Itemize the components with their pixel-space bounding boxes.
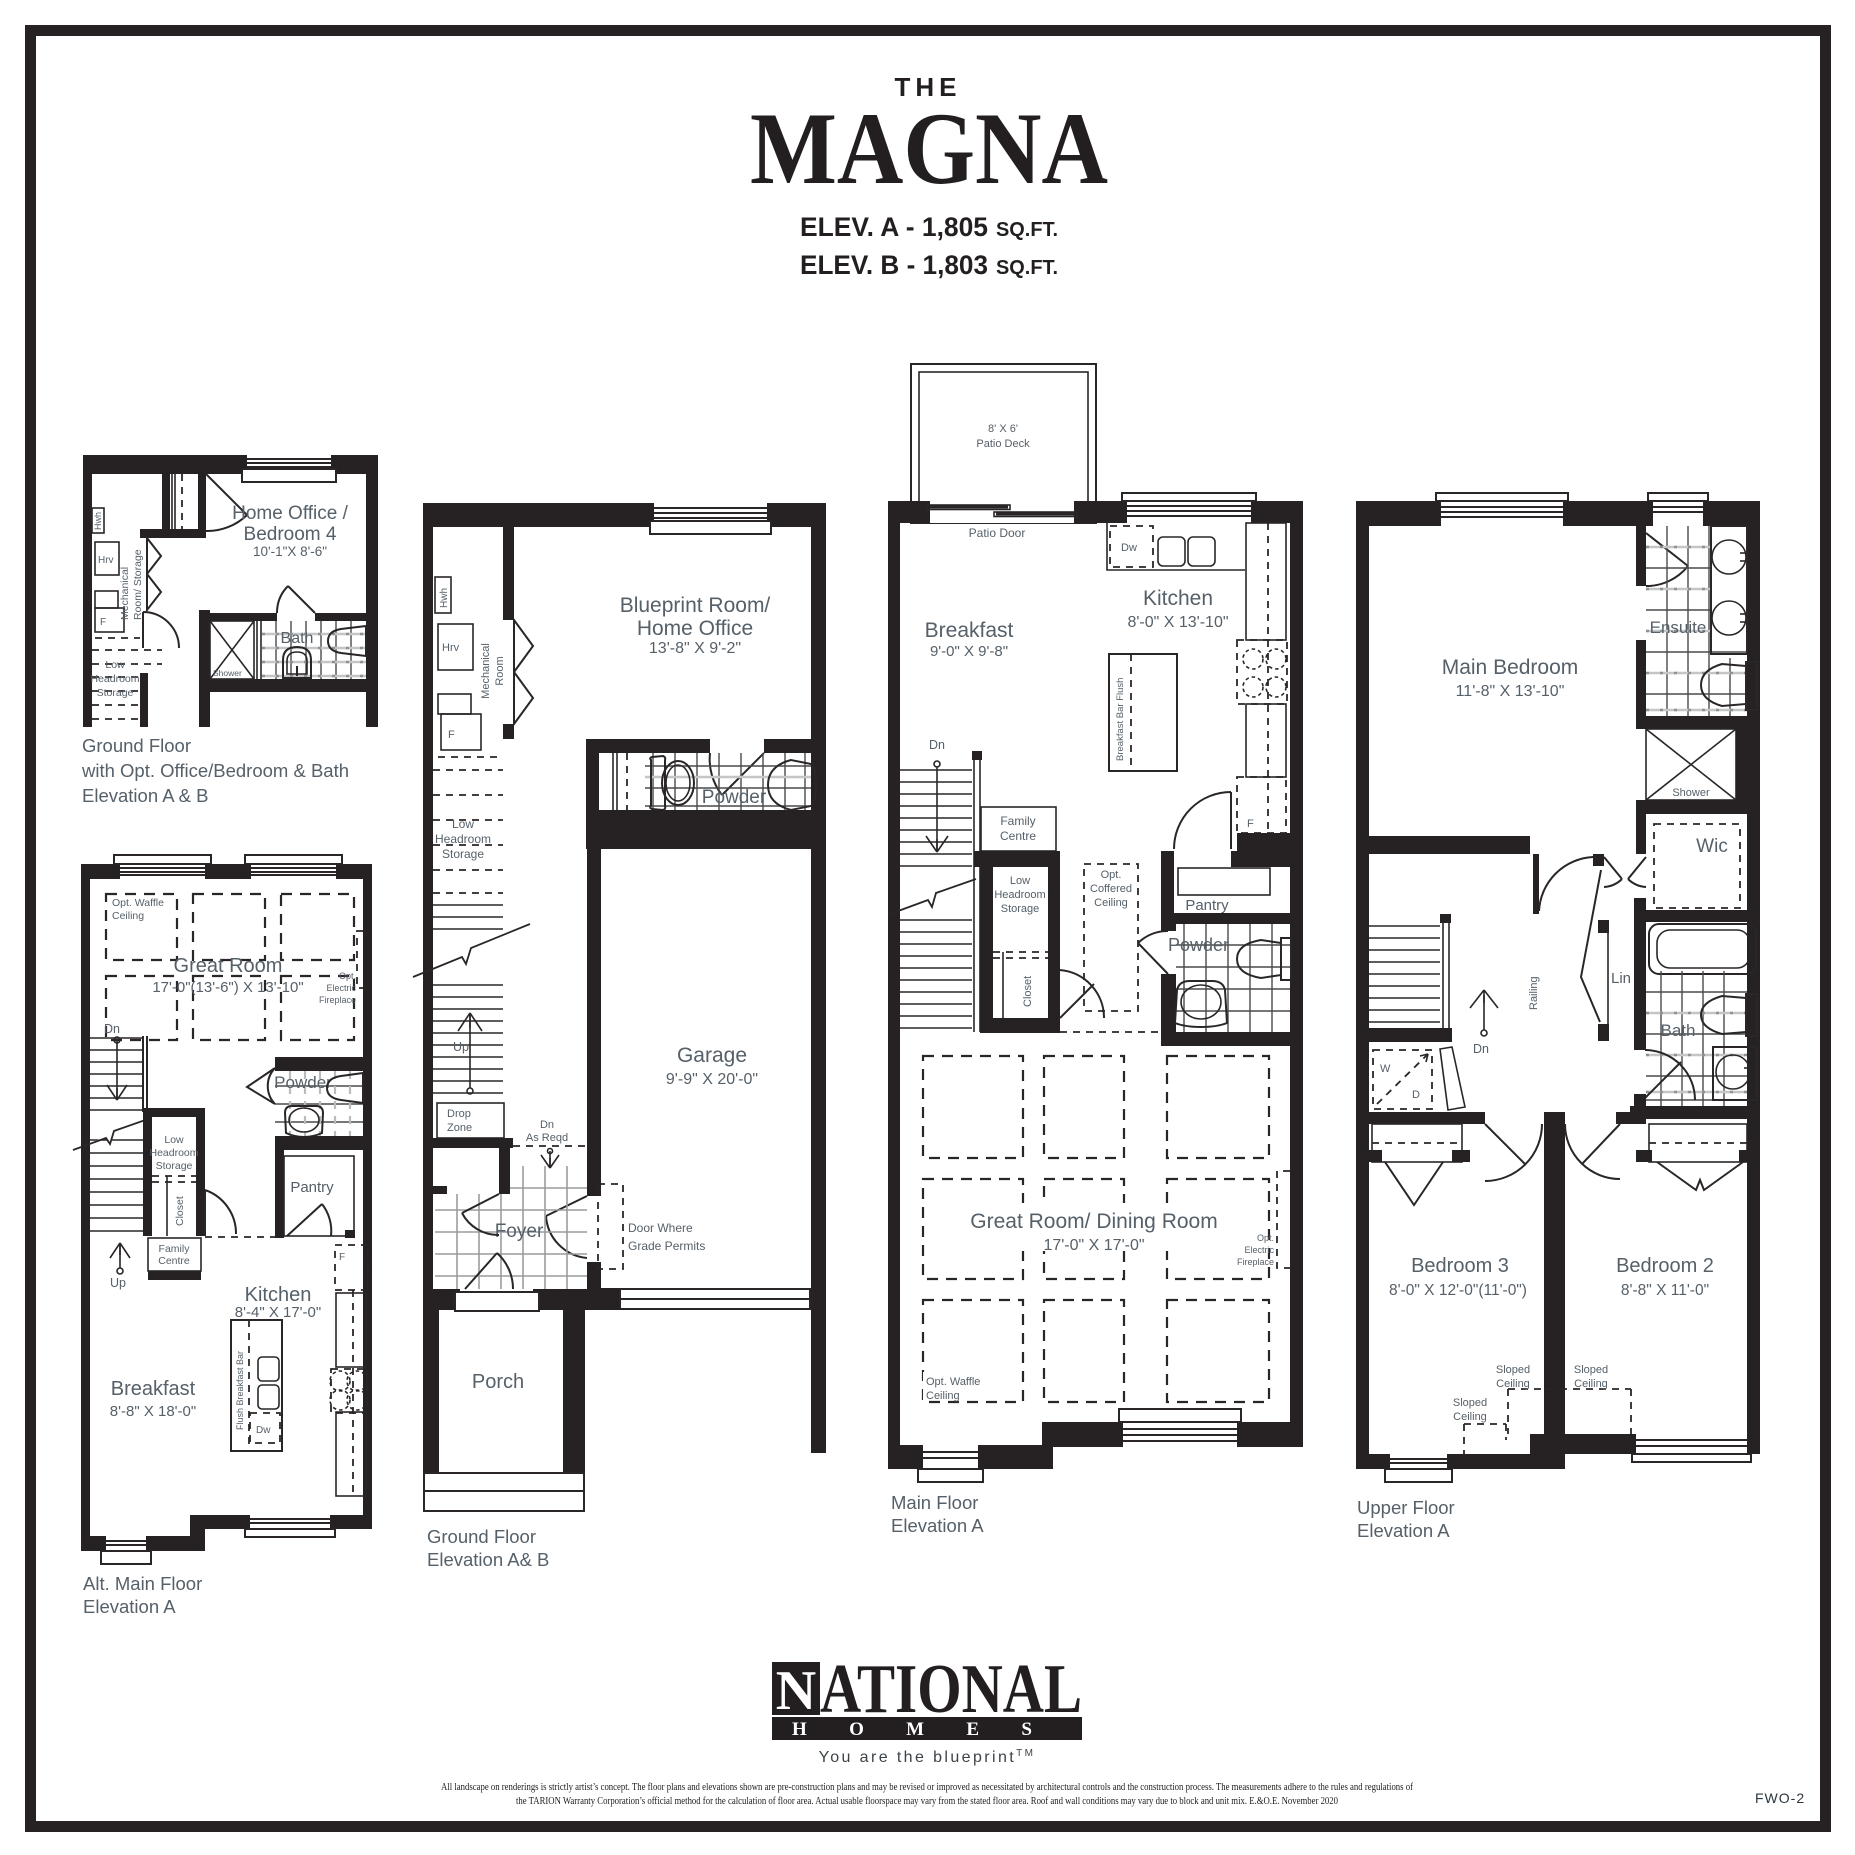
- svg-text:Pantry: Pantry: [290, 1179, 334, 1196]
- svg-text:Opt.: Opt.: [1101, 869, 1122, 881]
- svg-text:Elevation A& B: Elevation A& B: [427, 1549, 549, 1570]
- svg-text:Dn: Dn: [540, 1119, 554, 1131]
- svg-text:17'-0" X 17'-0": 17'-0" X 17'-0": [1043, 1237, 1144, 1254]
- svg-text:9'-9" X 20'-0": 9'-9" X 20'-0": [666, 1071, 758, 1088]
- svg-text:N: N: [776, 1660, 816, 1722]
- svg-text:Family: Family: [1000, 814, 1035, 828]
- svg-text:Main Bedroom: Main Bedroom: [1442, 656, 1579, 679]
- svg-text:Grade Permits: Grade Permits: [628, 1239, 705, 1253]
- svg-text:F: F: [339, 1252, 345, 1263]
- svg-text:Closet: Closet: [1022, 976, 1034, 1007]
- svg-text:Electric: Electric: [326, 983, 356, 993]
- svg-text:Alt. Main Floor: Alt. Main Floor: [83, 1573, 202, 1594]
- svg-text:Room: Room: [494, 656, 506, 685]
- svg-text:Porch: Porch: [472, 1371, 524, 1393]
- svg-text:Shower: Shower: [1672, 787, 1710, 799]
- svg-text:8'-0" X 13'-10": 8'-0" X 13'-10": [1127, 614, 1228, 631]
- svg-text:Zone: Zone: [447, 1122, 472, 1134]
- svg-text:9'-0" X 9'-8": 9'-0" X 9'-8": [930, 643, 1008, 660]
- svg-text:Sloped: Sloped: [1574, 1364, 1608, 1376]
- svg-text:Storage: Storage: [1001, 903, 1040, 915]
- svg-text:Powder: Powder: [702, 787, 767, 808]
- svg-text:Ceiling: Ceiling: [926, 1390, 960, 1402]
- svg-text:ATIONAL: ATIONAL: [820, 1651, 1082, 1728]
- svg-text:Hwh: Hwh: [93, 512, 103, 530]
- svg-text:Powder: Powder: [274, 1073, 332, 1092]
- svg-text:F: F: [1247, 818, 1254, 830]
- svg-text:Great Room: Great Room: [174, 955, 283, 977]
- svg-text:8'-8" X 18'-0": 8'-8" X 18'-0": [110, 1403, 196, 1420]
- svg-text:Storage: Storage: [97, 687, 134, 699]
- svg-text:the TARION Warranty Corporatio: the TARION Warranty Corporation’s offici…: [516, 1796, 1338, 1807]
- svg-text:Low: Low: [105, 659, 125, 671]
- svg-text:8'-0" X 12'-0"(11'-0"): 8'-0" X 12'-0"(11'-0"): [1389, 1282, 1527, 1299]
- svg-text:17'-0"(13'-6") X 13'-10": 17'-0"(13'-6") X 13'-10": [152, 979, 303, 996]
- svg-text:F: F: [448, 729, 455, 741]
- svg-text:Fireplace: Fireplace: [319, 995, 356, 1005]
- svg-text:Up: Up: [453, 1040, 469, 1054]
- svg-text:Home Office: Home Office: [637, 617, 753, 640]
- svg-text:with Opt. Office/Bedroom & Bat: with Opt. Office/Bedroom & Bath: [81, 760, 349, 781]
- svg-text:Great Room/ Dining Room: Great Room/ Dining Room: [970, 1210, 1217, 1233]
- svg-text:You are the blueprintTM: You are the blueprintTM: [819, 1748, 1036, 1766]
- svg-text:Mechanical: Mechanical: [119, 567, 131, 620]
- svg-text:Breakfast: Breakfast: [925, 619, 1014, 642]
- svg-text:Bath: Bath: [281, 630, 314, 647]
- svg-text:MAGNA: MAGNA: [750, 92, 1108, 206]
- svg-text:Low: Low: [452, 817, 474, 831]
- svg-text:W: W: [1380, 1063, 1391, 1075]
- svg-text:Elevation A: Elevation A: [83, 1596, 176, 1617]
- svg-text:Opt. Waffle: Opt. Waffle: [112, 897, 164, 909]
- svg-text:Centre: Centre: [158, 1255, 190, 1267]
- svg-text:Opt.: Opt.: [1257, 1233, 1274, 1243]
- svg-text:Electric: Electric: [1244, 1245, 1274, 1255]
- svg-text:Lin: Lin: [1611, 970, 1631, 987]
- svg-text:Kitchen: Kitchen: [1143, 587, 1213, 610]
- svg-text:Wic: Wic: [1696, 836, 1728, 857]
- svg-text:Low: Low: [1010, 875, 1030, 887]
- svg-text:Breakfast Bar Flush: Breakfast Bar Flush: [1115, 678, 1126, 761]
- svg-text:Kitchen: Kitchen: [245, 1284, 312, 1306]
- svg-text:Dn: Dn: [104, 1022, 120, 1036]
- svg-text:HOMES: HOMES: [792, 1719, 1062, 1740]
- svg-text:Dn: Dn: [1473, 1042, 1489, 1056]
- svg-text:Ceiling: Ceiling: [1453, 1411, 1487, 1423]
- svg-text:Low: Low: [164, 1134, 184, 1146]
- svg-text:SQ.FT.: SQ.FT.: [996, 219, 1058, 241]
- svg-text:Ensuite: Ensuite: [1650, 618, 1707, 637]
- svg-text:Drop: Drop: [447, 1108, 471, 1120]
- svg-text:Centre: Centre: [1000, 829, 1036, 843]
- svg-text:Closet: Closet: [174, 1196, 186, 1226]
- svg-text:D: D: [1412, 1089, 1420, 1101]
- svg-text:Ceiling: Ceiling: [1094, 897, 1128, 909]
- svg-text:Sloped: Sloped: [1453, 1397, 1487, 1409]
- svg-text:Hrv: Hrv: [442, 642, 460, 654]
- svg-text:Railing: Railing: [1528, 976, 1540, 1010]
- svg-text:Elevation A: Elevation A: [1357, 1520, 1450, 1541]
- svg-text:Elevation A & B: Elevation A & B: [82, 785, 209, 806]
- svg-text:8'-8" X 11'-0": 8'-8" X 11'-0": [1621, 1282, 1709, 1299]
- svg-text:Ground Floor: Ground Floor: [427, 1526, 536, 1547]
- svg-text:ELEV. A - 1,805: ELEV. A - 1,805: [800, 212, 988, 242]
- svg-text:Bedroom 3: Bedroom 3: [1411, 1255, 1509, 1277]
- svg-text:Coffered: Coffered: [1090, 883, 1132, 895]
- svg-text:Main Floor: Main Floor: [891, 1492, 978, 1513]
- svg-text:Fireplace: Fireplace: [1237, 1257, 1274, 1267]
- svg-text:Powder: Powder: [1168, 935, 1229, 955]
- svg-text:Door Where: Door Where: [628, 1221, 693, 1235]
- svg-text:Headroom: Headroom: [435, 832, 491, 846]
- svg-text:Garage: Garage: [677, 1044, 747, 1067]
- svg-text:Bedroom 4: Bedroom 4: [244, 524, 337, 545]
- svg-text:Dw: Dw: [256, 1425, 271, 1436]
- svg-text:Headroom: Headroom: [994, 889, 1045, 901]
- svg-text:Ground Floor: Ground Floor: [82, 735, 191, 756]
- svg-text:Family: Family: [159, 1243, 191, 1255]
- svg-text:All landscape on renderings is: All landscape on renderings is strictly …: [441, 1782, 1414, 1793]
- svg-text:Dw: Dw: [1121, 542, 1137, 554]
- svg-text:FWO-2: FWO-2: [1755, 1790, 1805, 1806]
- svg-text:Up: Up: [110, 1276, 126, 1290]
- svg-text:Blueprint Room/: Blueprint Room/: [620, 594, 771, 617]
- svg-text:Ceiling: Ceiling: [1574, 1378, 1608, 1390]
- svg-text:10'-1"X 8'-6": 10'-1"X 8'-6": [253, 544, 327, 559]
- svg-text:Foyer: Foyer: [495, 1221, 544, 1242]
- svg-text:Flush Breakfast Bar: Flush Breakfast Bar: [235, 1351, 245, 1430]
- svg-text:Storage: Storage: [156, 1160, 193, 1172]
- svg-text:Headroom: Headroom: [149, 1147, 198, 1159]
- svg-text:Hwh: Hwh: [439, 588, 450, 608]
- svg-text:Ceiling: Ceiling: [112, 910, 144, 922]
- svg-text:Upper Floor: Upper Floor: [1357, 1497, 1455, 1518]
- svg-text:Mechanical: Mechanical: [480, 643, 492, 699]
- svg-text:Elevation A: Elevation A: [891, 1515, 984, 1536]
- svg-text:SQ.FT.: SQ.FT.: [996, 257, 1058, 279]
- svg-text:Headroom: Headroom: [90, 673, 139, 685]
- svg-text:Bedroom 2: Bedroom 2: [1616, 1255, 1714, 1277]
- svg-text:Bath: Bath: [1661, 1021, 1696, 1040]
- svg-text:Ceiling: Ceiling: [1496, 1378, 1530, 1390]
- svg-text:Hrv: Hrv: [98, 555, 114, 566]
- svg-text:8'-4" X 17'-0": 8'-4" X 17'-0": [235, 1304, 321, 1321]
- svg-text:8' X 6': 8' X 6': [988, 423, 1018, 435]
- svg-text:Opt. Waffle: Opt. Waffle: [926, 1376, 980, 1388]
- svg-text:Pantry: Pantry: [1185, 897, 1229, 914]
- svg-text:Patio Door: Patio Door: [969, 526, 1026, 540]
- svg-text:Home Office /: Home Office /: [232, 503, 349, 524]
- svg-text:Sloped: Sloped: [1496, 1364, 1530, 1376]
- svg-text:Patio Deck: Patio Deck: [976, 438, 1030, 450]
- svg-text:Opt.: Opt.: [339, 971, 356, 981]
- svg-text:As Reqd: As Reqd: [526, 1132, 568, 1144]
- svg-text:Breakfast: Breakfast: [111, 1378, 196, 1400]
- svg-text:ELEV. B - 1,803: ELEV. B - 1,803: [800, 250, 988, 280]
- svg-text:Dn: Dn: [929, 738, 945, 752]
- svg-text:F: F: [100, 617, 106, 628]
- svg-text:13'-8" X 9'-2": 13'-8" X 9'-2": [649, 640, 741, 657]
- svg-text:11'-8" X 13'-10": 11'-8" X 13'-10": [1456, 683, 1565, 700]
- svg-text:Storage: Storage: [442, 847, 484, 861]
- svg-text:Room/ Storage: Room/ Storage: [132, 549, 144, 620]
- svg-text:Shower: Shower: [213, 668, 242, 678]
